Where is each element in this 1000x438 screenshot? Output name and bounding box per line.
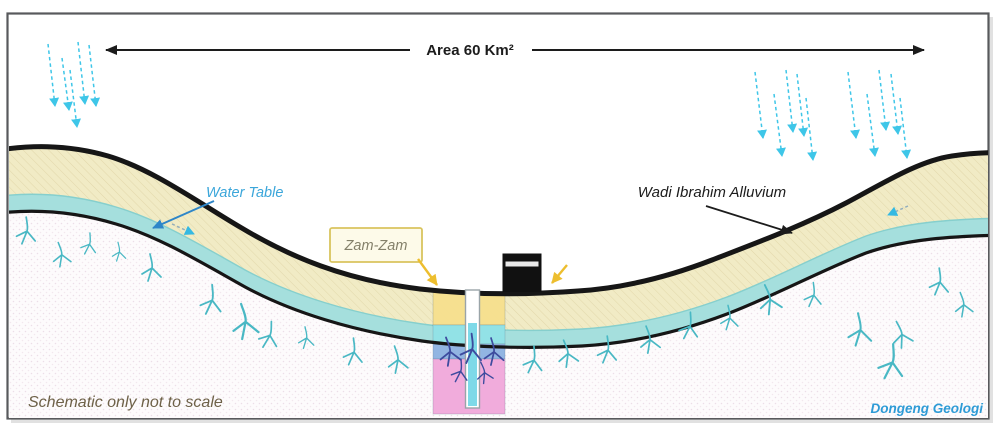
alluvium-label: Wadi Ibrahim Alluvium (638, 184, 786, 201)
area-extent-label: Area 60 Km² (426, 42, 514, 59)
schematic-note: Schematic only not to scale (28, 394, 223, 411)
credit-label: Dongeng Geologi (871, 401, 984, 416)
kaaba-band (506, 262, 539, 267)
schematic-diagram: Area 60 Km² Water Table Wadi Ibrahim All… (0, 0, 1000, 433)
kaaba-icon (503, 254, 542, 293)
cross-section-svg: Area 60 Km² Water Table Wadi Ibrahim All… (0, 0, 1000, 433)
water-table-label: Water Table (206, 185, 283, 201)
zamzam-label: Zam-Zam (344, 238, 408, 254)
zamzam-label-box: Zam-Zam (330, 228, 422, 262)
